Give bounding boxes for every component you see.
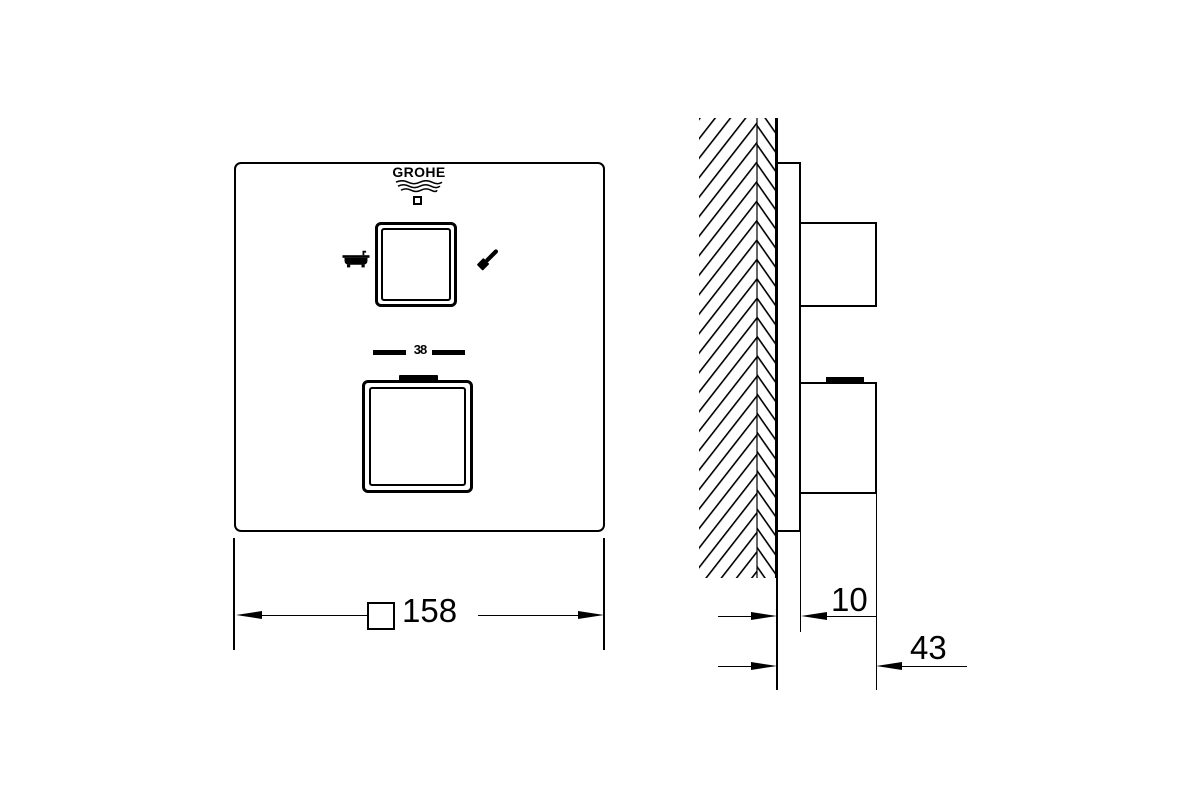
dim-line-depth10-left-tail: [718, 616, 754, 618]
dim-arrow-depth10-right: [801, 612, 827, 620]
dim-line-depth43-left-tail: [718, 666, 754, 668]
dim-label-plate-depth: 10: [831, 583, 868, 616]
square-section-symbol: [367, 602, 395, 630]
thermostat-knob: [362, 380, 473, 493]
thermostat-knob-grip-tab: [399, 375, 438, 382]
handshower-icon: [476, 245, 503, 272]
thermostat-grip-tab-side: [826, 377, 864, 383]
diverter-knob: [375, 222, 457, 307]
dim-line-width-left: [250, 615, 367, 617]
grohe-logo-text: GROHE: [390, 165, 448, 179]
dim-arrow-depth43-right: [876, 662, 902, 670]
dim-arrow-depth10-left: [751, 612, 777, 620]
thermostat-knob-side-profile: [799, 382, 877, 494]
extension-line-wall-face: [776, 578, 778, 690]
dim-line-width-right: [478, 615, 590, 617]
grohe-logo-waves-icon: [395, 180, 443, 194]
grohe-logo-square-icon: [413, 196, 422, 205]
plate-side-profile: [776, 162, 801, 532]
diverter-knob-side-profile: [799, 222, 877, 307]
dim-arrow-depth43-left: [751, 662, 777, 670]
dim-arrow-width-right: [578, 611, 604, 619]
temp-scale-dash-right: [432, 350, 465, 355]
extension-line-width-right: [603, 538, 605, 650]
temp-scale-dash-left: [373, 350, 406, 355]
extension-line-width-left: [233, 538, 235, 650]
thermostat-knob-inner-edge: [369, 387, 466, 486]
dim-label-total-depth: 43: [910, 631, 947, 664]
wall-hatch: [699, 118, 775, 578]
dim-label-width: 158: [402, 594, 457, 627]
bathtub-icon: [342, 248, 370, 269]
extension-line-knob-front: [876, 494, 878, 690]
diverter-knob-inner-edge: [381, 228, 451, 301]
